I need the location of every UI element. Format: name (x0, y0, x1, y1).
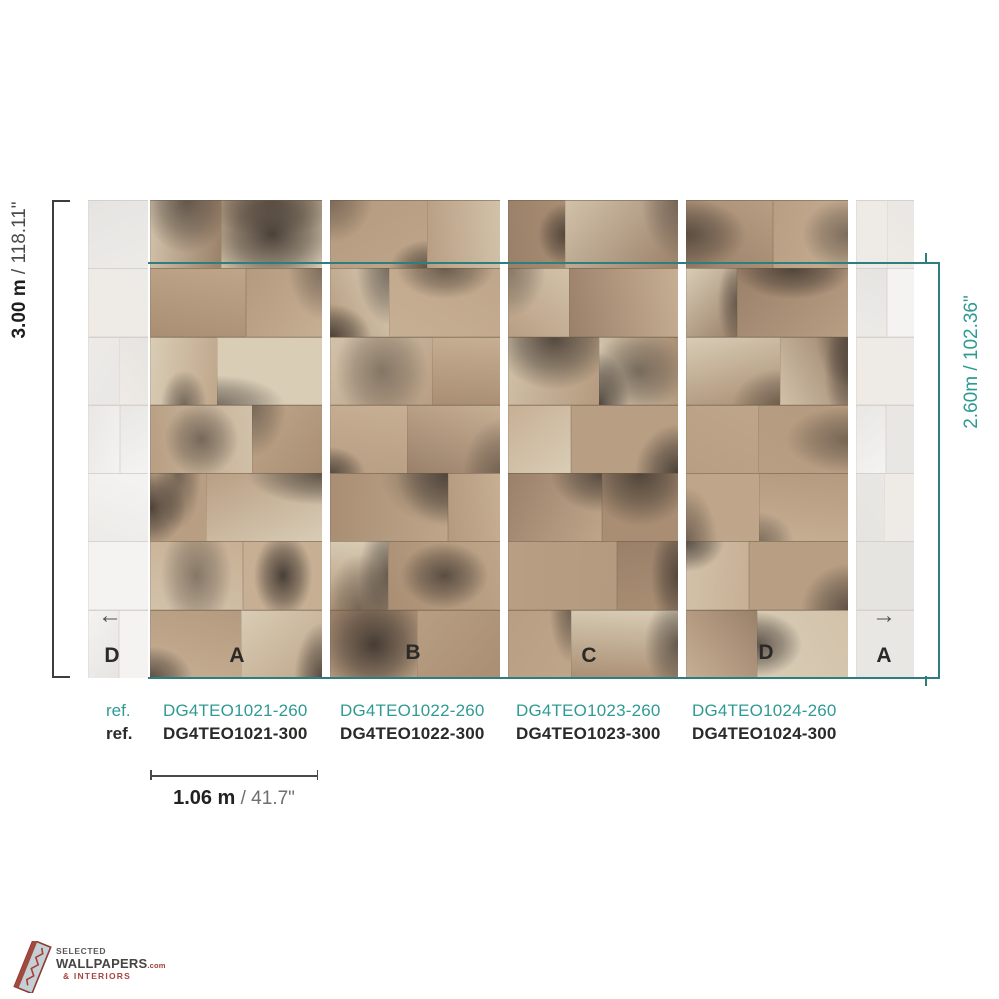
mural-tile (150, 337, 218, 406)
variant-height-metric: 2.60m (961, 376, 982, 429)
mural-tile (330, 337, 433, 406)
ref-code-1021-260: DG4TEO1021-260 (163, 701, 308, 721)
selectedwallpapers-logo: SELECTED WALLPAPERS.com & INTERIORS (12, 940, 152, 996)
mural-tile (599, 337, 678, 406)
logo-line-interiors: & INTERIORS (63, 972, 166, 981)
mural-tile (856, 200, 888, 269)
wallpaper-roll-icon (12, 941, 54, 993)
mural-tile (88, 200, 148, 269)
mural-tile (119, 337, 148, 406)
panel-width-tick-right (317, 770, 319, 780)
logo-line-selected: SELECTED (56, 947, 166, 956)
mural-tile (330, 541, 389, 610)
mural-tile (120, 405, 148, 474)
mural-tile (856, 268, 887, 337)
mural-tile (749, 541, 848, 610)
mural-panel-d (686, 200, 848, 678)
mural-tile (389, 268, 500, 337)
variant-height-nub-bottom (925, 676, 927, 686)
mural-tile (508, 200, 566, 269)
repeat-arrow-right-icon: → (864, 602, 904, 630)
mural-tile (252, 405, 322, 474)
panel-width-imperial: / 41.7" (235, 788, 295, 809)
mural-tile (206, 473, 322, 542)
height-bracket-tick-bottom (52, 676, 70, 678)
mural-tile (330, 405, 408, 474)
mural-tile (150, 200, 222, 269)
mural-tile (884, 473, 914, 542)
variant-height-line-bottom (148, 677, 940, 679)
logo-text: SELECTED WALLPAPERS.com & INTERIORS (56, 947, 166, 980)
repeat-arrow-left-icon: ← (90, 602, 130, 630)
mural-tile (887, 200, 914, 269)
panel-letter-strip-right: A (864, 643, 904, 669)
mural-tile (737, 268, 849, 337)
mural-tile (448, 473, 500, 542)
panel-width-line (150, 775, 318, 777)
ref-label-260: ref. (106, 701, 131, 721)
mural-tile (150, 541, 243, 610)
mural-panel-a (150, 200, 322, 678)
mural-tile (887, 268, 914, 337)
total-height-imperial: / 118.11" (9, 201, 30, 279)
mural-tile (508, 337, 600, 406)
mural-tile (571, 405, 678, 474)
mural-tile (150, 473, 207, 542)
mural-tile (150, 268, 246, 337)
mural-tile (88, 337, 120, 406)
height-bracket-tick-top (52, 200, 70, 202)
mural-tile (330, 268, 390, 337)
mural-tile (508, 268, 570, 337)
ref-code-1024-300: DG4TEO1024-300 (692, 724, 837, 744)
mural-tile (508, 473, 602, 542)
variant-height-imperial: / 102.36" (961, 295, 982, 376)
mural-tile (330, 200, 428, 269)
mural-tile (758, 405, 848, 474)
mural-tile (407, 405, 500, 474)
mural-tile (88, 268, 148, 337)
total-height-dimension-label: 3.00 m / 118.11" (8, 185, 32, 355)
mural-tile (221, 200, 322, 269)
variant-height-dimension-label: 2.60m / 102.36" (960, 262, 984, 462)
ref-code-1023-260: DG4TEO1023-260 (516, 701, 661, 721)
mural-tile (686, 337, 781, 406)
variant-height-bracket (938, 262, 940, 679)
mural-tile (246, 268, 322, 337)
ref-label-300: ref. (106, 724, 132, 744)
logo-line-wallpapers: WALLPAPERS.com (56, 957, 166, 970)
mural-tile (508, 610, 572, 678)
variant-height-line-top (148, 262, 940, 264)
mural-tile (150, 405, 253, 474)
mural-tile (686, 268, 737, 337)
mural-tile (856, 541, 914, 610)
mural-tile (427, 200, 500, 269)
mural-tile (217, 337, 322, 406)
mural-tile (686, 200, 773, 269)
logo-wallpapers-text: WALLPAPERS (56, 956, 147, 971)
mural-tile (330, 473, 448, 542)
mural-panel-c (508, 200, 678, 678)
wallpaper-dimension-diagram: 3.00 m / 118.11" 2.60m / 102.36" ← → D A… (0, 0, 999, 999)
ref-code-1024-260: DG4TEO1024-260 (692, 701, 837, 721)
panel-width-dimension-label: 1.06 m / 41.7" (134, 787, 334, 810)
mural-tile (508, 405, 571, 474)
panel-width-tick-left (150, 770, 152, 780)
mural-tile (886, 405, 914, 474)
mural-tile (88, 405, 120, 474)
mural-tile (686, 541, 749, 610)
ref-code-1022-260: DG4TEO1022-260 (340, 701, 485, 721)
ref-code-1023-300: DG4TEO1023-300 (516, 724, 661, 744)
total-height-metric: 3.00 m (9, 279, 30, 338)
mural-tile (617, 541, 678, 610)
mural-panel-b (330, 200, 500, 678)
mural-tile (388, 541, 500, 610)
height-bracket-line (52, 200, 54, 678)
ref-code-1021-300: DG4TEO1021-300 (163, 724, 308, 744)
mural-tile (565, 200, 678, 269)
mural-tile (856, 337, 914, 406)
mural-tile (569, 268, 678, 337)
panel-letter-c: C (569, 643, 609, 669)
mural-tile (780, 337, 848, 406)
panel-letter-strip-left: D (92, 643, 132, 669)
panel-letter-a: A (217, 643, 257, 669)
mural-tile (773, 200, 848, 269)
mural-tile (602, 473, 678, 542)
mural-tile (759, 473, 848, 542)
mural-tile (856, 405, 886, 474)
ref-code-1022-300: DG4TEO1022-300 (340, 724, 485, 744)
mural-tile (508, 541, 617, 610)
variant-height-nub-top (925, 253, 927, 263)
mural-tile (856, 473, 885, 542)
mural-tile (686, 405, 759, 474)
panel-width-metric: 1.06 m (173, 787, 235, 809)
mural-tile (686, 473, 760, 542)
panel-letter-d: D (746, 640, 786, 666)
panel-letter-b: B (393, 640, 433, 666)
mural-tile (88, 473, 148, 542)
mural-tile (432, 337, 500, 406)
mural-tile (243, 541, 322, 610)
mural-tile (88, 541, 148, 610)
logo-dotcom-text: .com (147, 961, 165, 970)
